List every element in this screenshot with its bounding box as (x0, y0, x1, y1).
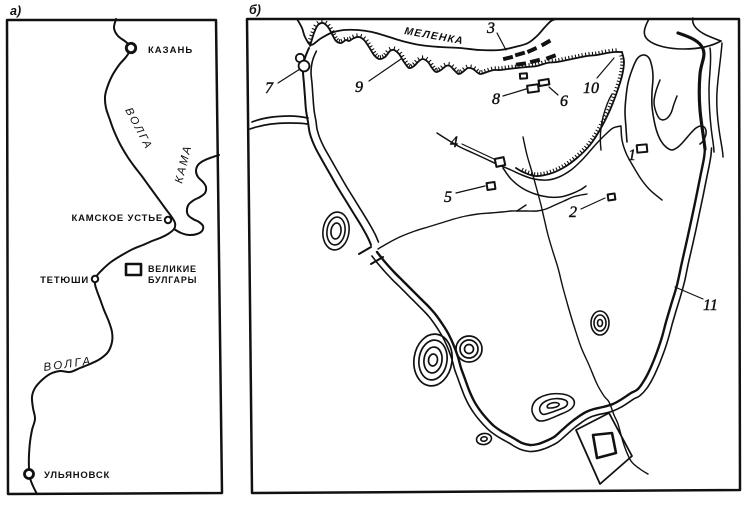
svg-text:9: 9 (355, 79, 363, 96)
svg-text:3: 3 (486, 20, 495, 37)
svg-text:УЛЬЯНОВСК: УЛЬЯНОВСК (44, 470, 110, 481)
svg-text:5: 5 (444, 189, 452, 206)
svg-text:10: 10 (583, 80, 599, 97)
svg-text:8: 8 (492, 91, 500, 108)
svg-text:КАМСКОЕ УСТЬЕ: КАМСКОЕ УСТЬЕ (72, 213, 164, 224)
svg-text:КАЗАНЬ: КАЗАНЬ (148, 45, 193, 56)
svg-text:а): а) (10, 4, 21, 18)
svg-text:1: 1 (628, 147, 636, 164)
svg-text:2: 2 (569, 204, 577, 221)
svg-text:ВЕЛИКИЕБУЛГАРЫ: ВЕЛИКИЕБУЛГАРЫ (148, 264, 197, 285)
svg-text:7: 7 (265, 80, 274, 97)
svg-text:ТЕТЮШИ: ТЕТЮШИ (40, 275, 89, 286)
svg-text:б): б) (249, 3, 261, 17)
svg-text:11: 11 (703, 297, 718, 314)
svg-text:6: 6 (560, 93, 568, 110)
svg-text:4: 4 (450, 134, 458, 151)
